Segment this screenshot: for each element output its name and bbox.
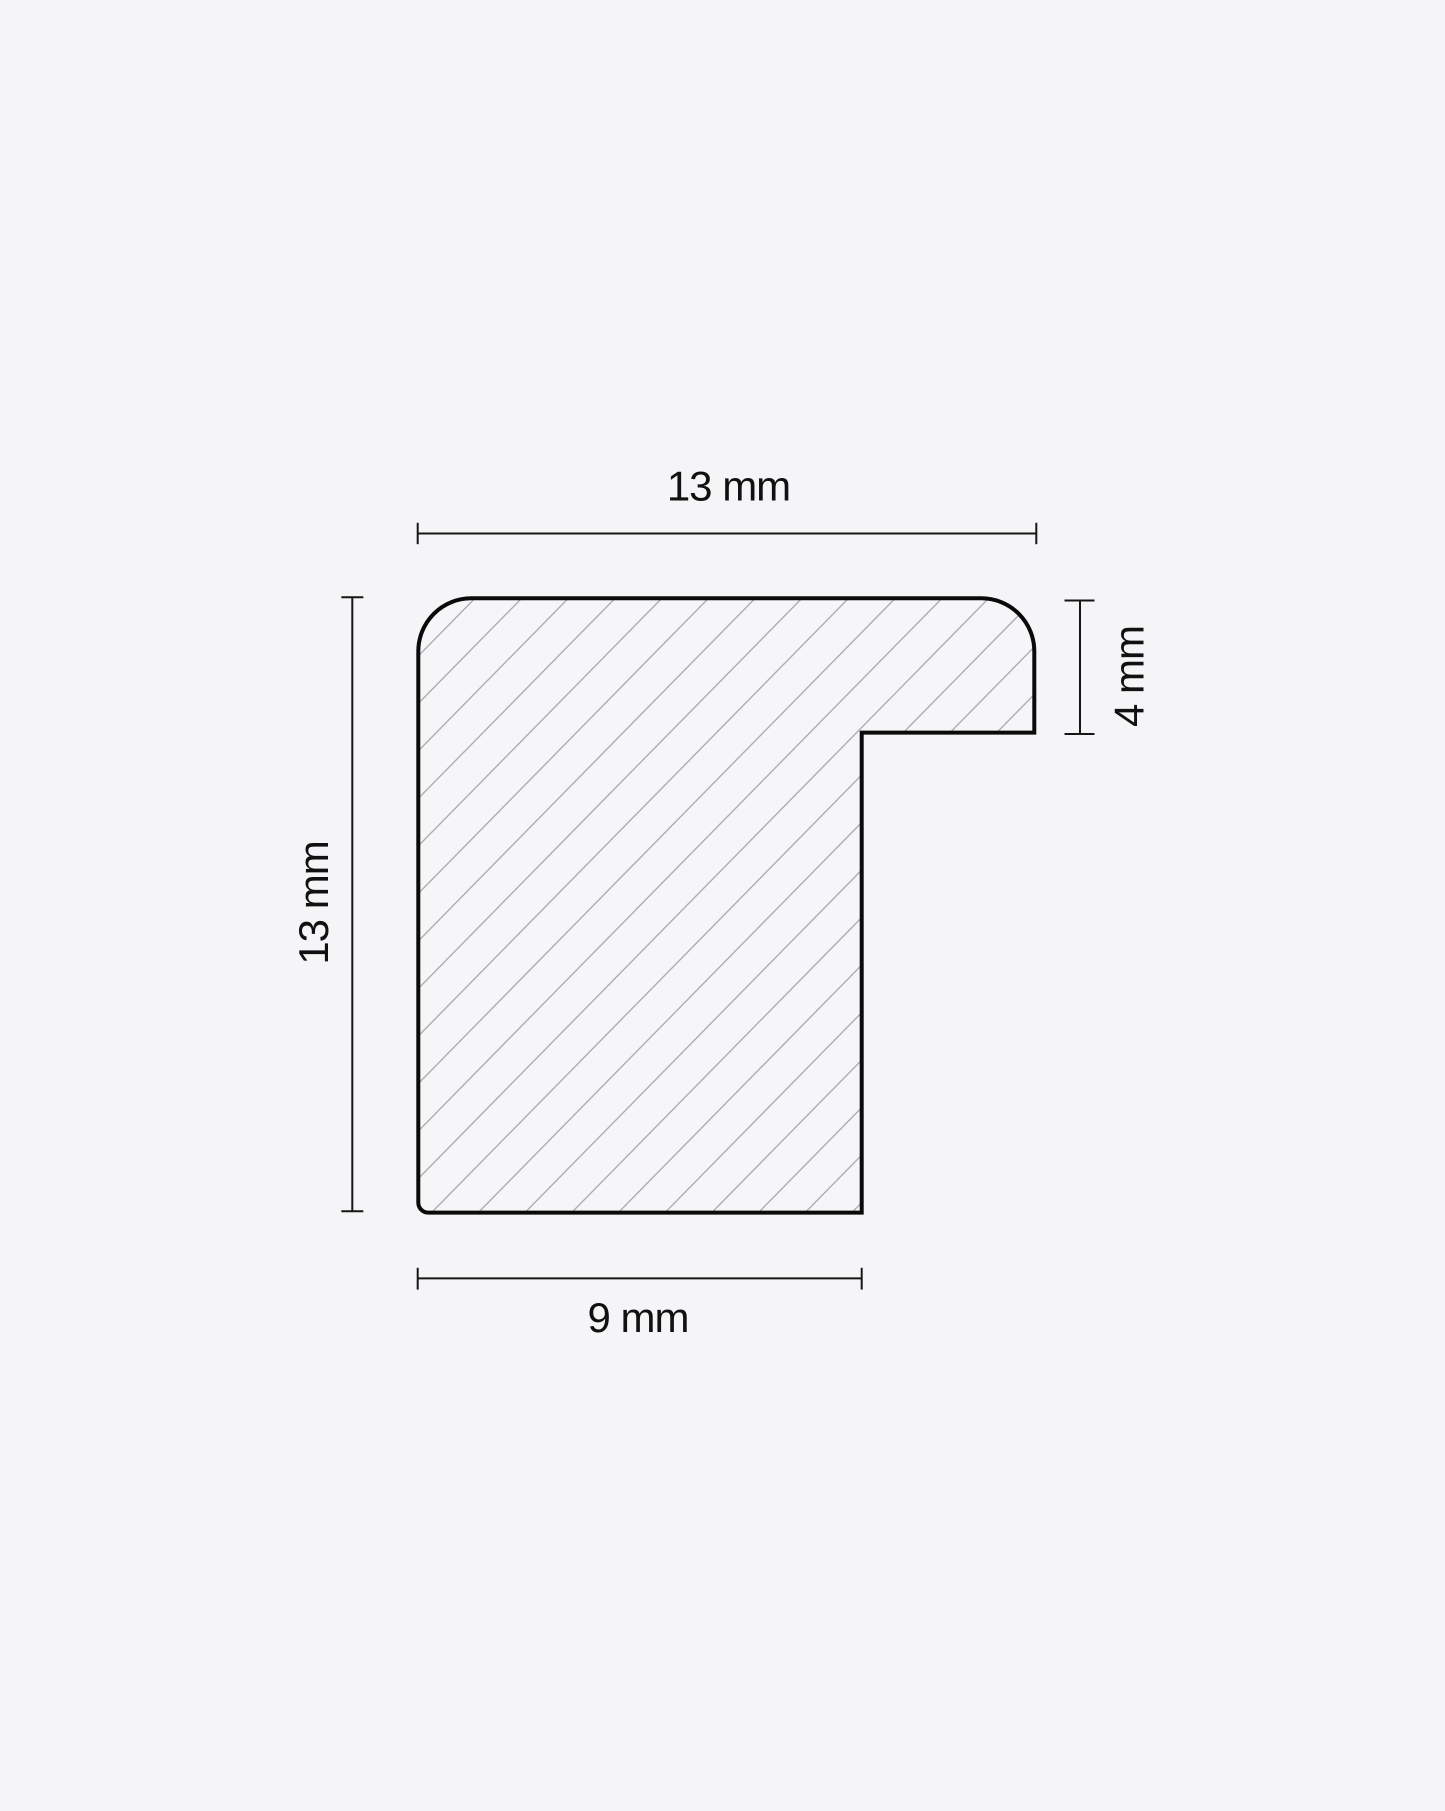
svg-text:13 mm: 13 mm [667,463,790,510]
svg-text:4 mm: 4 mm [1106,626,1153,727]
svg-text:9 mm: 9 mm [588,1294,689,1341]
svg-text:13 mm: 13 mm [290,841,337,964]
